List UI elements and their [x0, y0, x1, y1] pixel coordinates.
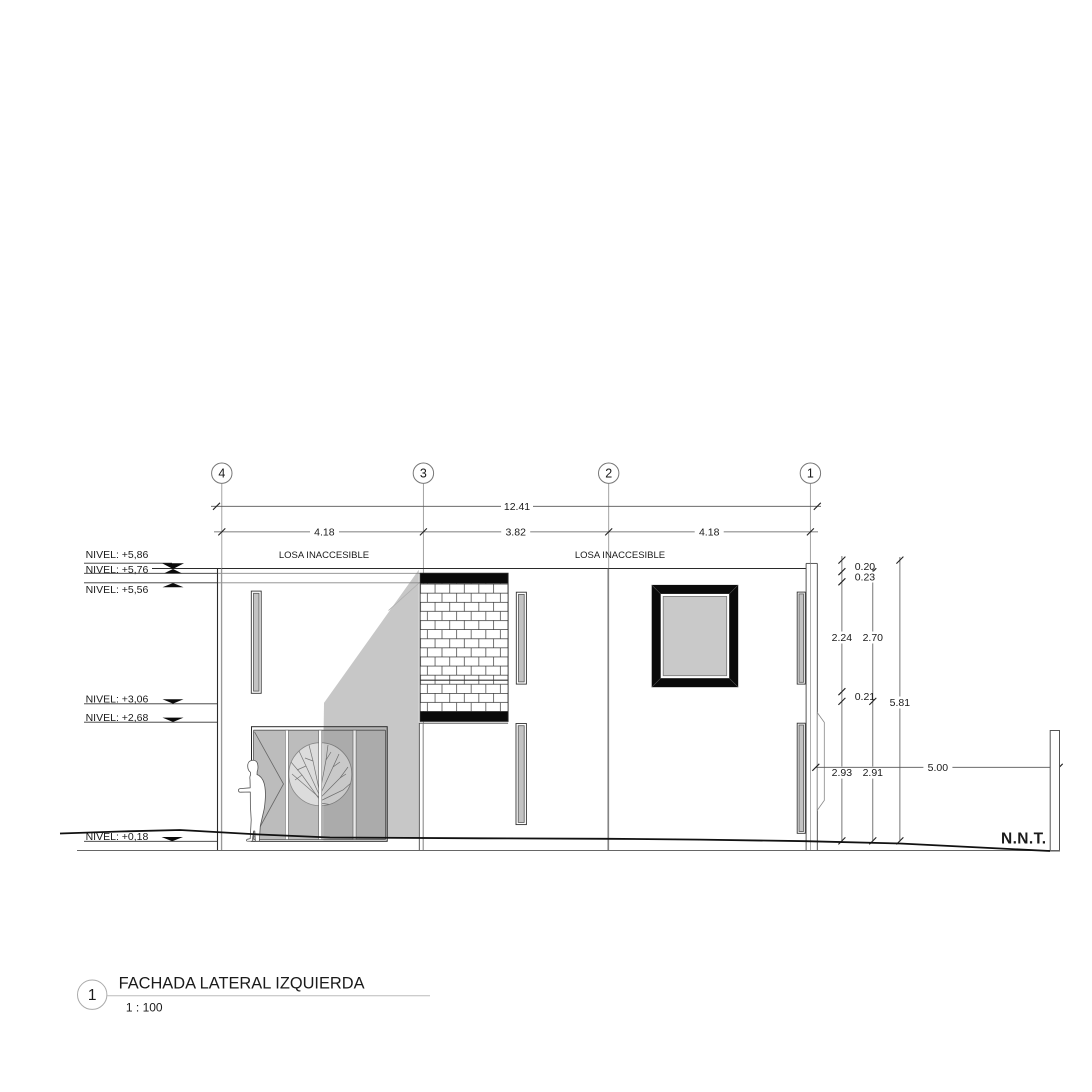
- svg-text:2.24: 2.24: [832, 632, 853, 644]
- svg-text:2.91: 2.91: [863, 767, 884, 779]
- svg-text:4.18: 4.18: [699, 527, 720, 539]
- svg-text:N.N.T.: N.N.T.: [1001, 831, 1046, 848]
- svg-text:2: 2: [605, 467, 612, 481]
- svg-text:4.18: 4.18: [314, 527, 335, 539]
- svg-text:1 : 100: 1 : 100: [126, 1001, 163, 1015]
- svg-text:5.81: 5.81: [890, 697, 911, 709]
- svg-text:NIVEL: +5,86: NIVEL: +5,86: [86, 549, 149, 561]
- svg-text:0.21: 0.21: [855, 691, 876, 703]
- svg-text:0.23: 0.23: [855, 572, 876, 584]
- svg-text:1: 1: [88, 987, 97, 1004]
- svg-text:12.41: 12.41: [504, 501, 530, 513]
- svg-text:LOSA INACCESIBLE: LOSA INACCESIBLE: [575, 550, 665, 561]
- svg-text:NIVEL: +5,76: NIVEL: +5,76: [86, 564, 149, 576]
- svg-text:3: 3: [420, 467, 427, 481]
- svg-text:5.00: 5.00: [928, 762, 949, 774]
- svg-text:1: 1: [807, 467, 814, 481]
- svg-text:LOSA INACCESIBLE: LOSA INACCESIBLE: [279, 550, 369, 561]
- svg-text:2.93: 2.93: [832, 767, 853, 779]
- svg-text:FACHADA LATERAL IZQUIERDA: FACHADA LATERAL IZQUIERDA: [119, 975, 365, 993]
- svg-text:3.82: 3.82: [505, 527, 526, 539]
- svg-text:NIVEL: +5,56: NIVEL: +5,56: [86, 584, 149, 596]
- svg-text:2.70: 2.70: [863, 632, 884, 644]
- svg-text:4: 4: [218, 467, 225, 481]
